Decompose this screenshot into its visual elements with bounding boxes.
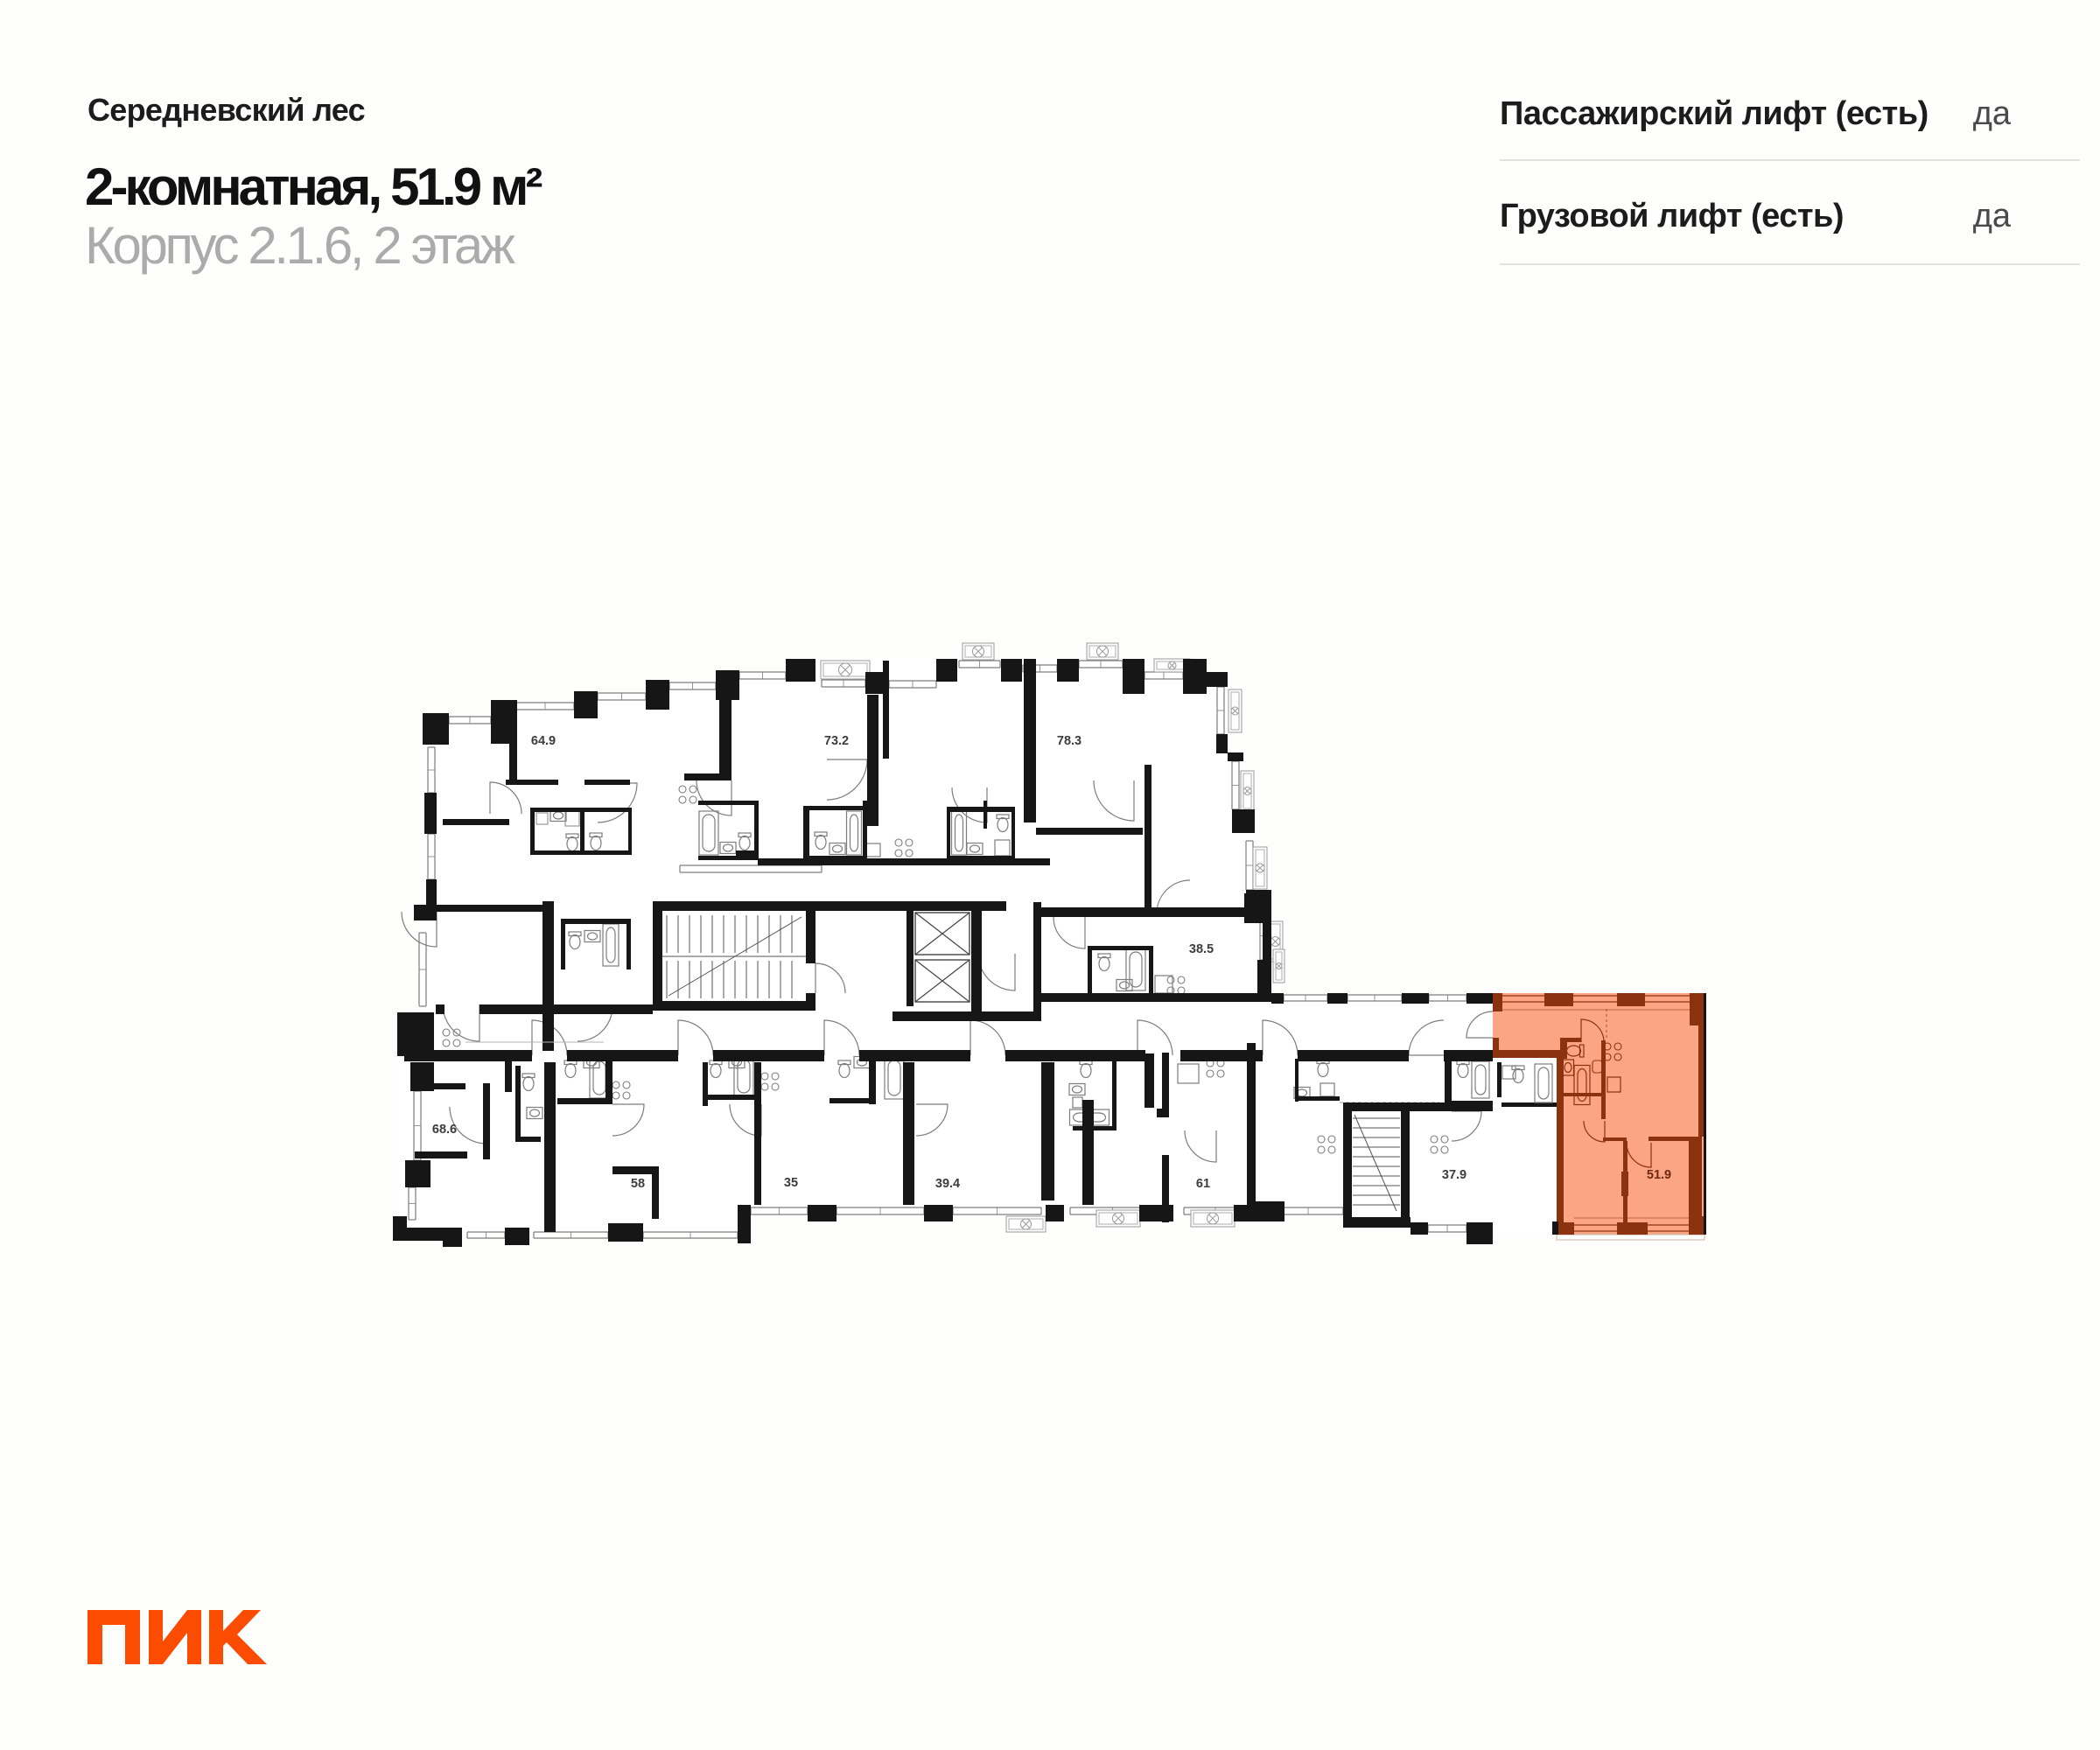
svg-text:Пассажирский лифт (есть): Пассажирский лифт (есть) xyxy=(1500,95,1928,132)
svg-text:37.9: 37.9 xyxy=(1442,1168,1466,1182)
svg-text:73.2: 73.2 xyxy=(824,734,849,748)
svg-text:Корпус 2.1.6, 2 этаж: Корпус 2.1.6, 2 этаж xyxy=(85,216,515,275)
svg-text:68.6: 68.6 xyxy=(432,1123,457,1137)
svg-text:51.9: 51.9 xyxy=(1647,1168,1671,1182)
svg-text:61: 61 xyxy=(1196,1177,1210,1191)
svg-text:38.5: 38.5 xyxy=(1189,942,1214,956)
svg-text:2-комнатная, 51.9 м²: 2-комнатная, 51.9 м² xyxy=(85,157,542,216)
svg-text:Середневский лес: Середневский лес xyxy=(87,92,365,128)
svg-text:58: 58 xyxy=(631,1177,645,1191)
svg-text:да: да xyxy=(1973,198,2012,234)
svg-text:Грузовой лифт (есть): Грузовой лифт (есть) xyxy=(1500,198,1844,234)
svg-text:35: 35 xyxy=(784,1176,798,1190)
svg-text:39.4: 39.4 xyxy=(935,1177,960,1191)
svg-text:64.9: 64.9 xyxy=(531,734,556,748)
svg-text:да: да xyxy=(1973,95,2012,132)
svg-text:78.3: 78.3 xyxy=(1057,734,1081,748)
